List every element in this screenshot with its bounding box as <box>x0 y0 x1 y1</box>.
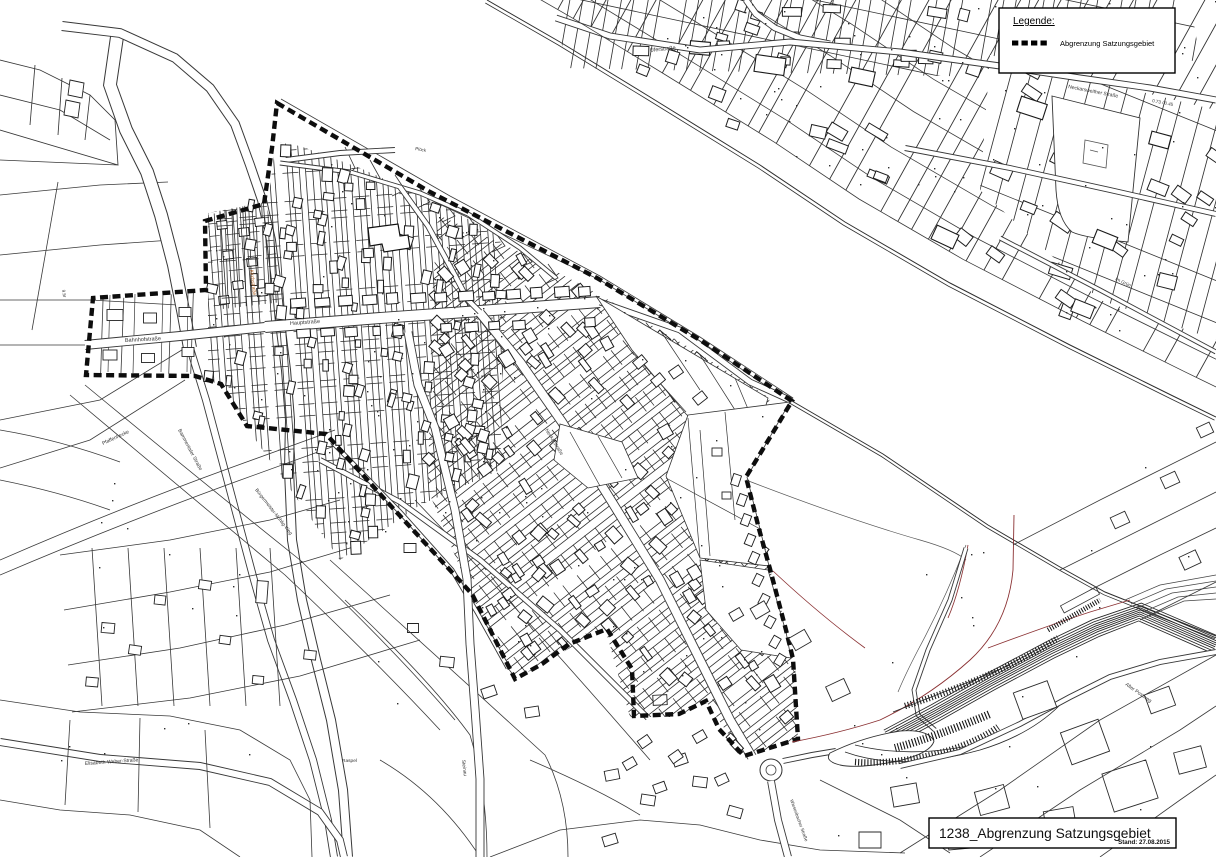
svg-text:Legende:: Legende: <box>1013 16 1055 27</box>
svg-text:Stand: 27.08.2015: Stand: 27.08.2015 <box>1118 839 1170 846</box>
svg-text:Raspel: Raspel <box>342 758 357 764</box>
svg-text:Abgrenzung Satzungsgebiet: Abgrenzung Satzungsgebiet <box>1060 39 1155 48</box>
